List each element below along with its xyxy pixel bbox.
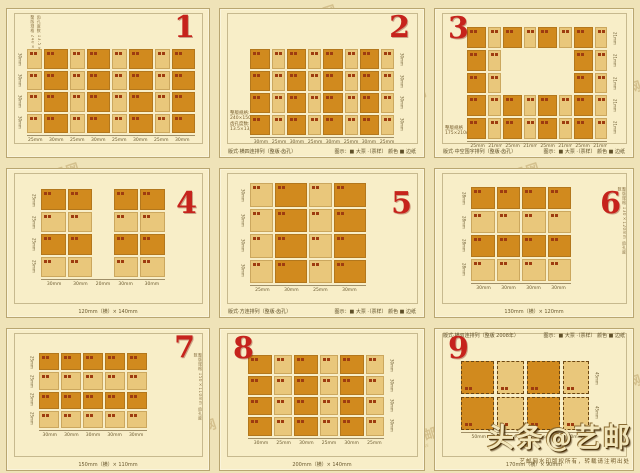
stamp-value-mark [527,30,530,33]
stamp-cell [595,118,607,139]
stamp-cell [522,187,546,209]
stamp-value-mark [384,52,387,55]
stamp-grid [41,189,165,277]
tick-label: 30mm [139,281,165,289]
stamp-cell [381,71,394,91]
panel-2: 230mm25mm30mm25mm30mm25mm30mm25mm30mm30m… [219,8,425,158]
stamp-value-mark [470,76,473,79]
stamp-value-mark [577,121,580,124]
stamp-value-mark [290,118,293,121]
stamp-cell [323,115,343,135]
stamp-value-mark [73,52,76,55]
stamp-value-mark [47,74,50,77]
stamp-cell [112,49,127,69]
stamp-cell [41,234,66,255]
stamp-value-mark [527,121,530,124]
row-dim-label: 30mm [390,399,394,412]
empty-slot [94,212,112,233]
stamp-value-mark [500,190,503,193]
stamp-cell [87,49,110,69]
stamp-value-mark [312,212,315,215]
row-dim-label: 28mm [462,239,466,252]
bottom-ruler-line [250,285,366,286]
tick-label: 30mm [169,137,195,145]
stamp-cell [366,417,384,436]
stamp-cell [41,189,66,210]
stamp-cell [105,372,125,389]
stamp-value-mark [143,215,146,218]
row-dimension-labels: 28mm28mm28mm28mm [458,187,469,281]
layout-board: 125mm30mm25mm30mm25mm30mm25mm30mm30mm30m… [0,0,640,471]
empty-slot [559,73,571,94]
tick-label: 30mm [250,139,272,147]
stamp-value-mark [577,30,580,33]
tick-label: 30mm [41,281,67,289]
stamp-cell [70,49,85,69]
empty-slot [538,50,557,71]
tick-label: 25mm [250,287,275,295]
row-dim-label: 25mm [30,375,34,388]
stamp-value-mark [363,118,366,121]
panel-1: 125mm30mm25mm30mm25mm30mm25mm30mm30mm30m… [6,8,210,158]
caption-legend: 图示：■ 大票 ·（票样） 颜色 ■ 边纸 [544,148,626,155]
stamp-value-mark [369,358,372,361]
stamp-cell [39,392,59,409]
tick-label: 30mm [333,287,366,295]
row-dim-label: 30mm [390,379,394,392]
stamp-cell [272,93,285,113]
stamp-cell [548,235,572,257]
tick-label: 30mm [39,432,61,440]
panel-number: 4 [176,189,197,219]
stamp-cell [87,114,110,134]
panel-number: 5 [391,189,412,219]
row-dimension-labels: 30mm30mm30mm30mm [386,355,397,436]
stamp-value-mark [42,375,45,378]
stamp-value-mark [337,263,340,266]
stamp-value-mark [277,420,280,423]
stamp-value-mark [44,260,47,263]
stamp-cell [250,183,273,207]
stamp-value-mark [470,53,473,56]
stamp-cell [250,71,270,91]
stamp-cell [155,49,170,69]
stamp-value-mark [130,375,133,378]
stamp-value-mark [326,74,329,77]
stamp-cell [345,115,358,135]
stamp-cell [595,73,607,94]
stamp-value-mark [598,30,601,33]
empty-slot [559,50,571,71]
stamp-value-mark [337,212,340,215]
stamp-value-mark [86,414,89,417]
stamp-cell [320,397,338,416]
row-dim-label: 25mm [30,412,34,425]
stamp-cell [105,411,125,428]
stamp-value-mark [562,98,565,101]
stamp-value-mark [567,387,570,390]
stamp-grid [27,49,195,133]
stamp-value-mark [130,414,133,417]
stamp-cell [595,27,607,48]
stamp-cell [548,187,572,209]
stamp-cell [127,411,147,428]
stamp-value-mark [470,30,473,33]
stamp-value-mark [275,74,278,77]
row-dim-label: 30mm [390,359,394,372]
stamp-cell [275,260,307,284]
stamp-value-mark [132,74,135,77]
stamp-cell [574,95,593,116]
overall-dimension-label: 200mm（横）× 140mm [220,461,424,468]
stamp-value-mark [363,74,366,77]
overall-dimension-label: 120mm（横）× 140mm [7,308,209,315]
stamp-cell [323,93,343,113]
stamp-grid [471,187,571,281]
stamp-cell [172,49,195,69]
stamp-value-mark [369,400,372,403]
tick-label: 25mm [274,440,293,448]
panel-4: 430mm30mm20mm30mm30mm25mm25mm25mm25mm120… [6,168,210,318]
stamp-value-mark [348,118,351,121]
stamp-cell [44,92,67,112]
row-dim-label: 30mm [241,239,245,252]
stamp-value-mark [115,117,118,120]
tick-label: 30mm [61,432,83,440]
row-dim-label: 25mm [30,356,34,369]
stamp-value-mark [500,262,503,265]
stamp-cell [340,376,364,395]
stamp-cell [44,49,67,69]
stamp-value-mark [326,118,329,121]
stamp-cell [272,115,285,135]
stamp-value-mark [297,379,300,382]
stamp-value-mark [108,395,111,398]
stamp-value-mark [86,375,89,378]
stamp-value-mark [326,96,329,99]
tick-label: 30mm [43,137,69,145]
stamp-value-mark [348,52,351,55]
tick-label: 30mm [521,285,546,293]
stamp-value-mark [343,379,346,382]
stamp-value-mark [384,74,387,77]
stamp-grid [248,355,384,436]
stamp-value-mark [64,414,67,417]
stamp-cell [503,118,522,139]
stamp-value-mark [71,260,74,263]
stamp-value-mark [90,95,93,98]
bottom-ruler-line [41,279,165,280]
row-dimension-labels: 30mm30mm30mm30mm [396,49,407,135]
stamp-value-mark [290,74,293,77]
stamp-cell [323,71,343,91]
stamp-value-mark [343,358,346,361]
stamp-value-mark [312,263,315,266]
stamp-value-mark [73,117,76,120]
stamp-cell [381,49,394,69]
stamp-value-mark [108,356,111,359]
tick-label: 25mm [27,137,43,145]
panel-number: 7 [174,333,195,363]
tick-label: 30mm [85,137,111,145]
tick-label: 30mm [127,137,153,145]
stamp-value-mark [343,420,346,423]
stamp-cell [309,260,332,284]
stamp-value-mark [253,212,256,215]
stamp-cell [488,27,500,48]
stamp-value-mark [42,395,45,398]
stamp-cell [155,71,170,91]
stamp-grid [250,183,366,283]
stamp-cell [548,259,572,281]
stamp-value-mark [363,96,366,99]
ruler-tick-labels: 30mm30mm30mm30mm [471,285,571,293]
tick-label: 30mm [286,139,308,147]
row-dim-label: 30mm [400,75,404,88]
stamp-cell [114,212,139,233]
stamp-value-mark [506,30,509,33]
stamp-cell [381,93,394,113]
caption-text: 版式·方连排列（整版·齿孔） [228,308,291,315]
row-dim-label: 30mm [400,96,404,109]
panel-caption: 版式·横双连排列（整版 2008年）图示：■ 大票 ·（票样） 颜色 ■ 边纸 [443,332,625,339]
stamp-cell [140,189,165,210]
stamp-value-mark [474,214,477,217]
stamp-value-mark [115,52,118,55]
empty-slot [94,234,112,255]
stamp-value-mark [175,95,178,98]
stamp-value-mark [44,192,47,195]
stamp-value-mark [278,212,281,215]
stamp-value-mark [525,190,528,193]
stamp-value-mark [108,375,111,378]
stamp-cell [275,183,307,207]
row-dim-label: 30mm [400,118,404,131]
stamp-cell [334,209,366,233]
stamp-value-mark [474,262,477,265]
stamp-cell [471,187,495,209]
stamp-value-mark [30,74,33,77]
stamp-value-mark [253,118,256,121]
stamp-value-mark [90,74,93,77]
tick-label: 25mm [69,137,85,145]
stamp-value-mark [132,117,135,120]
stamp-value-mark [143,237,146,240]
caption-legend: 图示：■ 大票 ·（票样） 颜色 ■ 边纸 [335,148,417,155]
tick-label: 25mm [365,440,384,448]
stamp-cell [114,257,139,278]
stamp-cell [471,259,495,281]
row-dim-label: 21mm [613,54,617,67]
stamp-value-mark [297,400,300,403]
stamp-cell [140,234,165,255]
bottom-ruler-line [471,283,571,284]
stamp-value-mark [525,214,528,217]
stamp-cell [287,49,307,69]
stamp-value-mark [363,52,366,55]
panel-number: 9 [448,334,469,364]
stamp-cell [345,49,358,69]
stamp-cell [287,93,307,113]
stamp-cell [155,114,170,134]
stamp-value-mark [311,96,314,99]
brand-note: 艺邮网水印版权所有，转载请注明出处 [519,457,630,465]
stamp-value-mark [491,98,494,101]
overall-dimension-label: 150mm（横）× 110mm [7,461,209,468]
stamp-cell [366,355,384,374]
stamp-value-mark [253,186,256,189]
stamp-value-mark [71,237,74,240]
stamp-value-mark [525,238,528,241]
stamp-value-mark [278,263,281,266]
stamp-cell [287,115,307,135]
empty-slot [94,257,112,278]
row-dim-label: 25mm [32,238,36,251]
stamp-value-mark [491,76,494,79]
row-dim-label: 30mm [390,419,394,432]
stamp-value-mark [143,260,146,263]
stamp-cell [323,49,343,69]
stamp-value-mark [253,237,256,240]
stamp-cell [471,235,495,257]
stamp-cell [334,183,366,207]
stamp-value-mark [132,52,135,55]
stamp-cell [127,372,147,389]
stamp-value-mark [290,52,293,55]
ruler-tick-labels: 25mm30mm25mm30mm [250,287,366,295]
stamp-value-mark [531,387,534,390]
stamp-value-mark [369,379,372,382]
stamp-cell [41,212,66,233]
caption-legend: 图示：■ 大票 ·（票样） 颜色 ■ 边纸 [335,308,417,315]
stamp-cell [39,372,59,389]
panel-8: 830mm25mm30mm25mm30mm25mm30mm30mm30mm30m… [219,328,425,471]
stamp-value-mark [506,98,509,101]
stamp-cell [155,92,170,112]
stamp-value-mark [491,121,494,124]
row-dimension-labels: 21mm21mm21mm21mm21mm [609,27,620,139]
stamp-grid [39,353,147,428]
row-dim-label: 21mm [613,32,617,45]
stamp-cell [345,71,358,91]
stamp-value-mark [117,260,120,263]
stamp-value-mark [323,379,326,382]
stamp-value-mark [337,237,340,240]
stamp-cell [83,372,103,389]
stamp-value-mark [278,237,281,240]
stamp-cell [467,50,486,71]
stamp-value-mark [158,52,161,55]
tick-label: 30mm [112,281,138,289]
tick-label: 30mm [339,440,365,448]
stamp-cell [574,118,593,139]
row-dim-label: 25mm [32,194,36,207]
stamp-cell [68,257,93,278]
panel-number: 8 [233,334,254,364]
stamp-value-mark [311,74,314,77]
panel-caption: 版式·中空围字排列（整版·齿孔）图示：■ 大票 ·（票样） 颜色 ■ 边纸 [443,148,625,155]
stamp-cell [522,259,546,281]
stamp-value-mark [297,358,300,361]
row-dim-label: 21mm [613,77,617,90]
stamp-value-mark [251,400,254,403]
tick-label: 20mm [94,281,113,289]
stamp-cell [503,95,522,116]
stamp-cell [61,392,81,409]
stamp-value-mark [278,186,281,189]
stamp-value-mark [541,121,544,124]
row-dimension-labels: 25mm25mm25mm25mm [26,353,37,428]
stamp-value-mark [562,30,565,33]
stamp-cell [44,71,67,91]
stamp-value-mark [598,98,601,101]
stamp-cell [467,73,486,94]
tick-label: 30mm [546,285,571,293]
panel-3: 325mm21mm25mm21mm25mm21mm25mm21mm21mm21m… [434,8,634,158]
stamp-cell [129,49,152,69]
stamp-cell [320,376,338,395]
stamp-value-mark [86,395,89,398]
stamp-value-mark [541,30,544,33]
stamp-cell [308,71,321,91]
stamp-cell [488,50,500,71]
stamp-cell [467,27,486,48]
stamp-cell [497,361,523,394]
stamp-value-mark [251,379,254,382]
ruler-tick-labels: 30mm25mm30mm25mm30mm25mm [248,440,384,448]
stamp-cell [112,114,127,134]
stamp-value-mark [275,96,278,99]
stamp-cell [294,355,318,374]
stamp-cell [114,189,139,210]
stamp-cell [522,211,546,233]
stamp-cell [61,411,81,428]
row-dim-label: 30mm [18,116,22,129]
stamp-cell [27,49,42,69]
stamp-cell [250,209,273,233]
stamp-value-mark [598,53,601,56]
panel-caption: 版式·方连排列（整版·齿孔）图示：■ 大票 ·（票样） 颜色 ■ 边纸 [228,308,416,315]
stamp-cell [308,115,321,135]
tick-label: 25mm [272,139,286,147]
stamp-value-mark [491,53,494,56]
tick-label: 30mm [82,432,104,440]
stamp-value-mark [275,52,278,55]
stamp-value-mark [500,238,503,241]
stamp-value-mark [500,214,503,217]
stamp-value-mark [551,190,554,193]
stamp-cell [275,209,307,233]
stamp-cell [83,392,103,409]
stamp-cell [548,211,572,233]
stamp-cell [274,376,292,395]
stamp-cell [44,114,67,134]
tick-label: 30mm [67,281,93,289]
row-dimension-labels: 30mm30mm30mm30mm [237,183,248,283]
tick-label: 30mm [496,285,521,293]
stamp-value-mark [337,186,340,189]
stamp-value-mark [175,74,178,77]
stamp-value-mark [312,186,315,189]
stamp-value-mark [30,117,33,120]
row-dim-label: 30mm [18,95,22,108]
stamp-value-mark [117,237,120,240]
row-dim-label: 30mm [241,214,245,227]
stamp-cell [524,118,536,139]
stamp-cell [248,376,272,395]
stamp-value-mark [323,420,326,423]
panel-number: 1 [174,13,195,43]
